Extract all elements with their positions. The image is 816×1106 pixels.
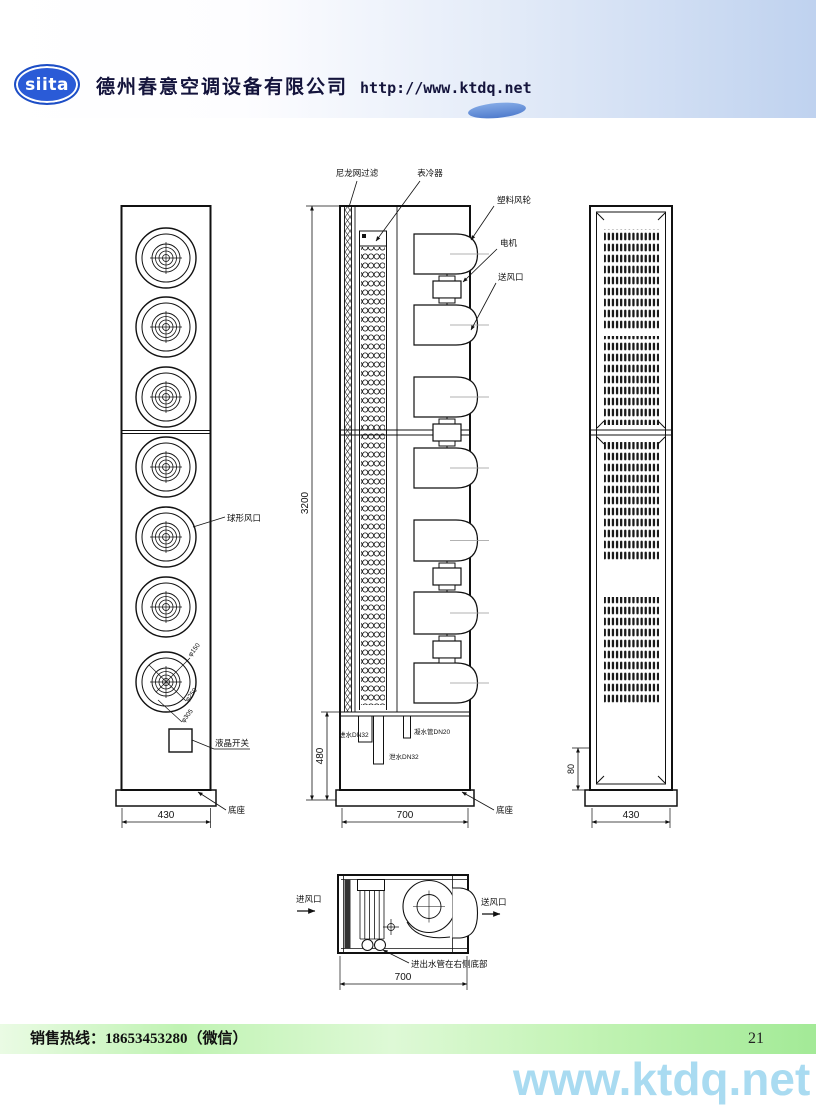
front-view: φ150 φ250 φ305 球形风口 液晶开关 底座 430 xyxy=(116,206,261,828)
switch-label: 液晶开关 xyxy=(215,738,250,748)
filter-label: 尼龙网过滤 xyxy=(336,168,379,178)
scroll-fan xyxy=(403,881,455,938)
round-nozzle xyxy=(136,297,196,357)
outlet-label: 送风口 xyxy=(498,272,524,282)
sales-hotline: 销售热线：18653453280（微信） xyxy=(30,1024,248,1054)
section-width-dim: 700 xyxy=(397,810,414,821)
lcd-switch xyxy=(169,729,192,752)
round-nozzle xyxy=(136,577,196,637)
back-view: 80 430 xyxy=(566,206,677,828)
pipe-fitting xyxy=(362,940,373,951)
dia-label-250: φ250 xyxy=(184,687,199,703)
inlet-pipe-label: 进水DN32 xyxy=(339,730,369,739)
pipe-fitting xyxy=(375,940,386,951)
top-width-dim: 700 xyxy=(395,972,412,983)
base-label-section: 底座 xyxy=(496,805,514,815)
lower-dim: 480 xyxy=(315,747,326,764)
nylon-filter xyxy=(345,207,352,712)
back-base-dim: 80 xyxy=(566,764,576,774)
nozzle-label: 球形风口 xyxy=(227,513,261,523)
inlet-flow-label: 进风口 xyxy=(296,894,322,904)
nozzle-plan xyxy=(453,888,478,938)
pipe-note-label: 进出水管在右侧底部 xyxy=(411,959,488,969)
filter-strip xyxy=(345,880,351,949)
drain-pipe-label: 泄水DN32 xyxy=(389,752,419,761)
round-nozzle xyxy=(136,367,196,427)
watermark-text: www.ktdq.net xyxy=(513,1052,810,1106)
round-nozzle xyxy=(136,228,196,288)
technical-drawing: φ150 φ250 φ305 球形风口 液晶开关 底座 430 xyxy=(0,0,816,1100)
outlet-flow-label: 送风口 xyxy=(481,897,507,907)
base-label-front: 底座 xyxy=(228,805,246,815)
dia-label-150: φ150 xyxy=(187,642,202,658)
condensate-pipe-label: 凝水管DN20 xyxy=(414,727,451,736)
round-nozzle xyxy=(136,437,196,497)
height-dim: 3200 xyxy=(300,491,311,514)
front-width-dim: 430 xyxy=(158,810,175,821)
footer-bar: 销售热线：18653453280（微信） 21 xyxy=(0,1024,816,1054)
catalog-page: { "header": { "logo": "siita", "company"… xyxy=(0,0,816,1100)
datum-mark xyxy=(383,919,399,935)
grille-slots xyxy=(604,229,659,703)
page-number: 21 xyxy=(748,1024,764,1054)
motor-label: 电机 xyxy=(500,238,518,248)
cooling-coil xyxy=(361,247,385,705)
coil-label: 表冷器 xyxy=(417,168,443,178)
round-nozzle xyxy=(136,507,196,567)
coil-tubes xyxy=(360,891,384,940)
dia-label-305: φ305 xyxy=(180,708,195,724)
top-view: 进风口 送风口 进出水管在右侧底部 700 xyxy=(296,875,507,990)
section-view: 进水DN32 泄水DN32 凝水管DN20 底座 尼龙网过滤 表冷器 塑料风轮 … xyxy=(300,168,532,828)
back-width-dim: 430 xyxy=(623,810,640,821)
fan-label: 塑料风轮 xyxy=(497,195,532,205)
fan-housings xyxy=(414,234,478,703)
